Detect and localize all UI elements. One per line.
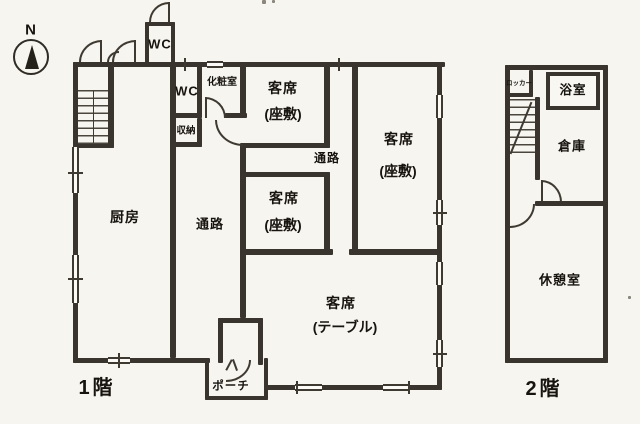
room-label-corridor-left: 通路 [196,218,224,231]
room-label-storage: 収納 [176,126,195,136]
door-arc [541,180,562,202]
window-tick [408,381,410,394]
window-tick [184,58,186,71]
window-tick [433,353,447,355]
window [436,95,443,118]
wall-segment [324,172,330,255]
room-label-zashiki-mid-1: 客席 [269,191,299,205]
wall-segment [258,318,263,365]
wall-segment [170,142,202,147]
room-label-wc-top: WC [148,38,172,51]
wall-segment [218,318,223,363]
wall-segment [73,358,210,363]
room-label-rest: 休憩室 [539,274,581,287]
room-label-kitchen: 厨房 [110,210,140,224]
wall-segment [205,396,268,400]
wall-segment [505,93,533,97]
room-label-table-1: 客席 [326,296,356,310]
scan-artifact [628,296,631,299]
wall-segment [205,358,209,400]
room-label-locker: ロッカー [506,81,532,88]
door-arc [149,2,169,22]
wall-segment [505,65,608,70]
wall-segment [240,62,246,118]
wall-segment [240,172,330,177]
wall-segment [170,62,176,358]
room-label-zashiki-top-1: 客席 [268,81,298,95]
stairs-rail [93,91,94,143]
compass-needle-icon [25,45,39,69]
wall-segment [505,358,608,363]
window [383,384,410,391]
wall-segment [218,318,263,323]
door-leaf [168,2,170,22]
room-label-zashiki-top-2: (座敷) [264,107,301,121]
stairs-wall [535,97,540,180]
room-label-powder: 化粧室 [207,78,237,88]
floor2-title: 2階 [525,379,562,399]
window-tick [68,278,83,280]
wall-segment [535,201,608,206]
wall-segment [240,143,330,148]
floor1-title: 1階 [78,378,115,398]
window [72,147,79,193]
wall-segment [324,62,330,148]
door-arc [215,120,243,146]
door-arc [205,97,226,118]
room-label-bath: 浴室 [559,84,586,97]
room-label-table-2: (テーブル) [313,320,377,334]
room-label-wc-inner: WC [175,85,199,98]
wall-segment [264,358,268,400]
door-arc [107,51,119,62]
floor-plan: N WC ポーチ WC 収納 化粧室 客席 (座敷) [0,0,640,424]
wall-segment [603,65,608,363]
room-label-zashiki-right-2: (座敷) [379,164,416,178]
window [436,262,443,285]
window-tick [338,58,340,71]
wall-segment [264,385,442,390]
door-leaf [100,40,102,62]
stairs-wall [108,65,114,148]
door-leaf [134,40,136,62]
wall-segment [73,62,445,67]
room-label-warehouse: 倉庫 [558,140,586,153]
room-label-corridor-mid: 通路 [314,152,340,164]
window-tick [433,212,447,214]
wall-segment [352,62,358,255]
window-tick [296,381,298,394]
door-arc [510,204,535,228]
window [207,61,223,68]
wall-segment [240,249,333,255]
window-tick [118,353,120,368]
door-arc [79,40,102,62]
scan-artifact [272,0,275,3]
window [295,384,322,391]
compass-north-label: N [25,23,37,38]
room-label-zashiki-right-1: 客席 [384,132,414,146]
window-tick [68,172,83,174]
wall-segment [349,249,442,255]
scan-artifact [262,0,266,4]
room-label-porch: ポーチ [212,381,250,393]
room-label-zashiki-mid-2: (座敷) [264,218,301,232]
